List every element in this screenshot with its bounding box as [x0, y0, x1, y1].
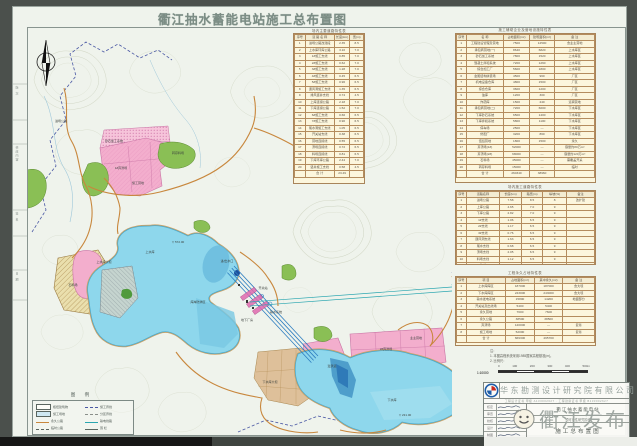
- legend-item: 永久公路: [36, 418, 81, 424]
- map-label: 石料场: [68, 283, 77, 287]
- scale-tick: 0: [498, 364, 500, 368]
- table-cell: [350, 171, 364, 177]
- legend-label: 施工界线: [100, 405, 112, 409]
- emoji-face-icon: [512, 408, 536, 430]
- right-table-3: 序号项 目占地面积(m²)其中永久(m²)备 注1上水库库区1870001870…: [455, 276, 596, 346]
- legend-label: 永久公路: [51, 419, 63, 423]
- line-symbol-icon: [85, 429, 98, 430]
- legend-box: 枢纽建筑物施工场地永久公路临时公路 施工界线分区界线输电线路围 栏: [32, 400, 134, 435]
- signature-label: 审查: [484, 411, 497, 417]
- drawing-title: 衢江抽水蓄能电站施工总布置图: [158, 9, 310, 28]
- map-label: 溢洪道: [327, 364, 336, 368]
- right_table_3-grid: 序号项 目占地面积(m²)其中永久(m²)备 注1上水库库区1870001870…: [456, 277, 595, 343]
- table-cell: [457, 263, 467, 265]
- bottom-bar-light: [484, 437, 637, 446]
- dashdot-symbol-icon: [85, 414, 98, 415]
- drawing-notes: 注： 1. 本图高程系统采用1985国家高程基准(m)。 2. 比例尺：: [490, 349, 606, 363]
- map-label: 施工营地: [132, 181, 144, 185]
- table-cell: [457, 336, 467, 342]
- road-symbol-icon: [36, 422, 49, 423]
- title-block-header-row: 华东勘测设计研究院有限公司: [484, 383, 629, 399]
- droad-symbol-icon: [36, 429, 49, 430]
- legend-item: 输电线路: [85, 418, 130, 424]
- right-table-1: 序号名 称占地面积(m²)建筑面积(m²)备 注1工程建设管理及营地750012…: [455, 33, 596, 183]
- table-cell: 合 计: [466, 336, 506, 342]
- legend-item: 临时公路: [36, 425, 81, 431]
- scale-tick: 400: [565, 364, 570, 368]
- right_table_2-grid: 序号道路名称长度(km)路宽(m)纵坡(%)备注1进场公路7.588.58改扩建…: [456, 191, 595, 265]
- map-label: 2#弃渣场: [380, 347, 392, 351]
- watermark: 衢江发布: [512, 404, 627, 433]
- right-table-3-title: 工程永久占地特性表: [465, 270, 585, 275]
- center-table: 序号道 路 名 称长度(km)宽(m)1进场公路改建段2.358.52上水库环库…: [293, 33, 365, 184]
- legend-item: 枢纽建筑物: [36, 404, 81, 410]
- margin-strip-label: 修改内容: [15, 146, 19, 162]
- map-label: 地下厂房: [241, 318, 253, 322]
- scale-tick: 200: [530, 364, 535, 368]
- scale-segment: [534, 371, 552, 372]
- map-label: 砂石加工系统: [105, 139, 123, 143]
- table-cell: [457, 171, 467, 177]
- table-cell: [521, 263, 543, 265]
- table-cell: 260340: [504, 171, 530, 177]
- legend-item: 施工界线: [85, 404, 130, 410]
- rect-symbol-icon: [36, 404, 51, 410]
- company-logo-icon: [484, 383, 500, 398]
- legend-item: 分区界线: [85, 411, 130, 417]
- map-label: ▽ 231.00: [399, 413, 411, 417]
- signature-label: 校核: [484, 418, 497, 424]
- table-cell: 23.52: [500, 263, 522, 265]
- legend-label: 输电线路: [100, 419, 112, 423]
- legend-item: 施工场地: [36, 411, 81, 417]
- ticks-symbol-icon: [85, 422, 98, 423]
- map-label: 库岸防渗区: [190, 300, 205, 304]
- signature-label: 核定: [484, 404, 497, 410]
- table-cell: 669300: [506, 336, 535, 342]
- bottom-bar-gray: [212, 437, 484, 446]
- legend-label: 施工场地: [53, 412, 65, 416]
- map-label: 上水库大坝: [96, 260, 111, 264]
- signature-label: 设计: [484, 425, 497, 431]
- map-label: ▽ 572.00: [172, 240, 184, 244]
- table-cell: [543, 263, 567, 265]
- dash-symbol-icon: [85, 407, 98, 408]
- scale-bar: [498, 370, 588, 373]
- margin-strip-label: 签 名: [15, 212, 19, 222]
- scale-tick: 100: [512, 364, 517, 368]
- scale-tick-labels: 0100200300400500m: [498, 364, 590, 368]
- right-table-2: 序号道路名称长度(km)路宽(m)纵坡(%)备注1进场公路7.588.58改扩建…: [455, 190, 596, 265]
- map-label: 转存料场: [172, 151, 184, 155]
- margin-strip-label: 日 期: [15, 272, 19, 282]
- scale-segment: [552, 371, 570, 372]
- table-cell: 23.49: [334, 171, 350, 177]
- table-cell: [555, 171, 595, 177]
- table-cell: [566, 263, 594, 265]
- map-label: 开关站: [258, 286, 267, 290]
- table-cell: 合 计: [305, 171, 334, 177]
- scale-ratio: 1:10000: [477, 371, 489, 375]
- margin-strip-label: 版 次: [15, 86, 19, 96]
- legend-label: 临时公路: [51, 426, 63, 430]
- right-table-1-title: 施工辅助企业及营地设施特性表: [465, 27, 585, 32]
- scale-tick: 300: [547, 364, 552, 368]
- map-label: 业主营地: [410, 336, 422, 340]
- note-line: 2. 比例尺：: [490, 359, 606, 364]
- legend-column-right: 施工界线分区界线输电线路围 栏: [85, 403, 130, 432]
- map-label: 下水库: [387, 398, 396, 402]
- map-label: 输水系统: [270, 310, 282, 314]
- table-cell: 合 计: [466, 263, 500, 265]
- scale-segment: [569, 371, 587, 372]
- center_table-grid: 序号道 路 名 称长度(km)宽(m)1进场公路改建段2.358.52上水库环库…: [294, 34, 364, 178]
- scale-tick: 500m: [582, 364, 590, 368]
- table-cell: [295, 171, 306, 177]
- rect2-symbol-icon: [36, 411, 51, 417]
- legend-item: 围 栏: [85, 425, 130, 431]
- map-label: 上水库: [145, 250, 154, 254]
- table-cell: 38960: [529, 171, 555, 177]
- table-cell: 合 计: [466, 171, 504, 177]
- table-cell: [563, 336, 595, 342]
- scale-segment: [499, 371, 517, 372]
- legend-column-left: 枢纽建筑物施工场地永久公路临时公路: [36, 403, 81, 432]
- table-cell: 495700: [534, 336, 563, 342]
- right-table-2-title: 场内施工道路特性表: [465, 184, 585, 189]
- right_table_1-grid: 序号名 称占地面积(m²)建筑面积(m²)备 注1工程建设管理及营地750012…: [456, 34, 595, 178]
- map-label: 进/出水口: [221, 259, 234, 263]
- map-label: 1#弃渣场: [115, 166, 127, 170]
- watermark-text: 衢江发布: [539, 404, 627, 433]
- legend-label: 围 栏: [100, 426, 107, 430]
- scale-segment: [517, 371, 535, 372]
- legend-label: 分区界线: [100, 412, 112, 416]
- map-label: 进场公路: [55, 119, 67, 123]
- legend-label: 枢纽建筑物: [53, 405, 68, 409]
- company-name: 华东勘测设计研究院有限公司: [500, 383, 637, 398]
- map-label: 下水库大坝: [262, 380, 277, 384]
- scanned-drawing-page: 上水库上水库大坝库岸防渗区进/出水口输水系统地下厂房开关站下水库下水库大坝溢洪道…: [0, 0, 637, 446]
- bottom-bar-black: [0, 437, 212, 446]
- legend-title: 图 例: [58, 392, 106, 398]
